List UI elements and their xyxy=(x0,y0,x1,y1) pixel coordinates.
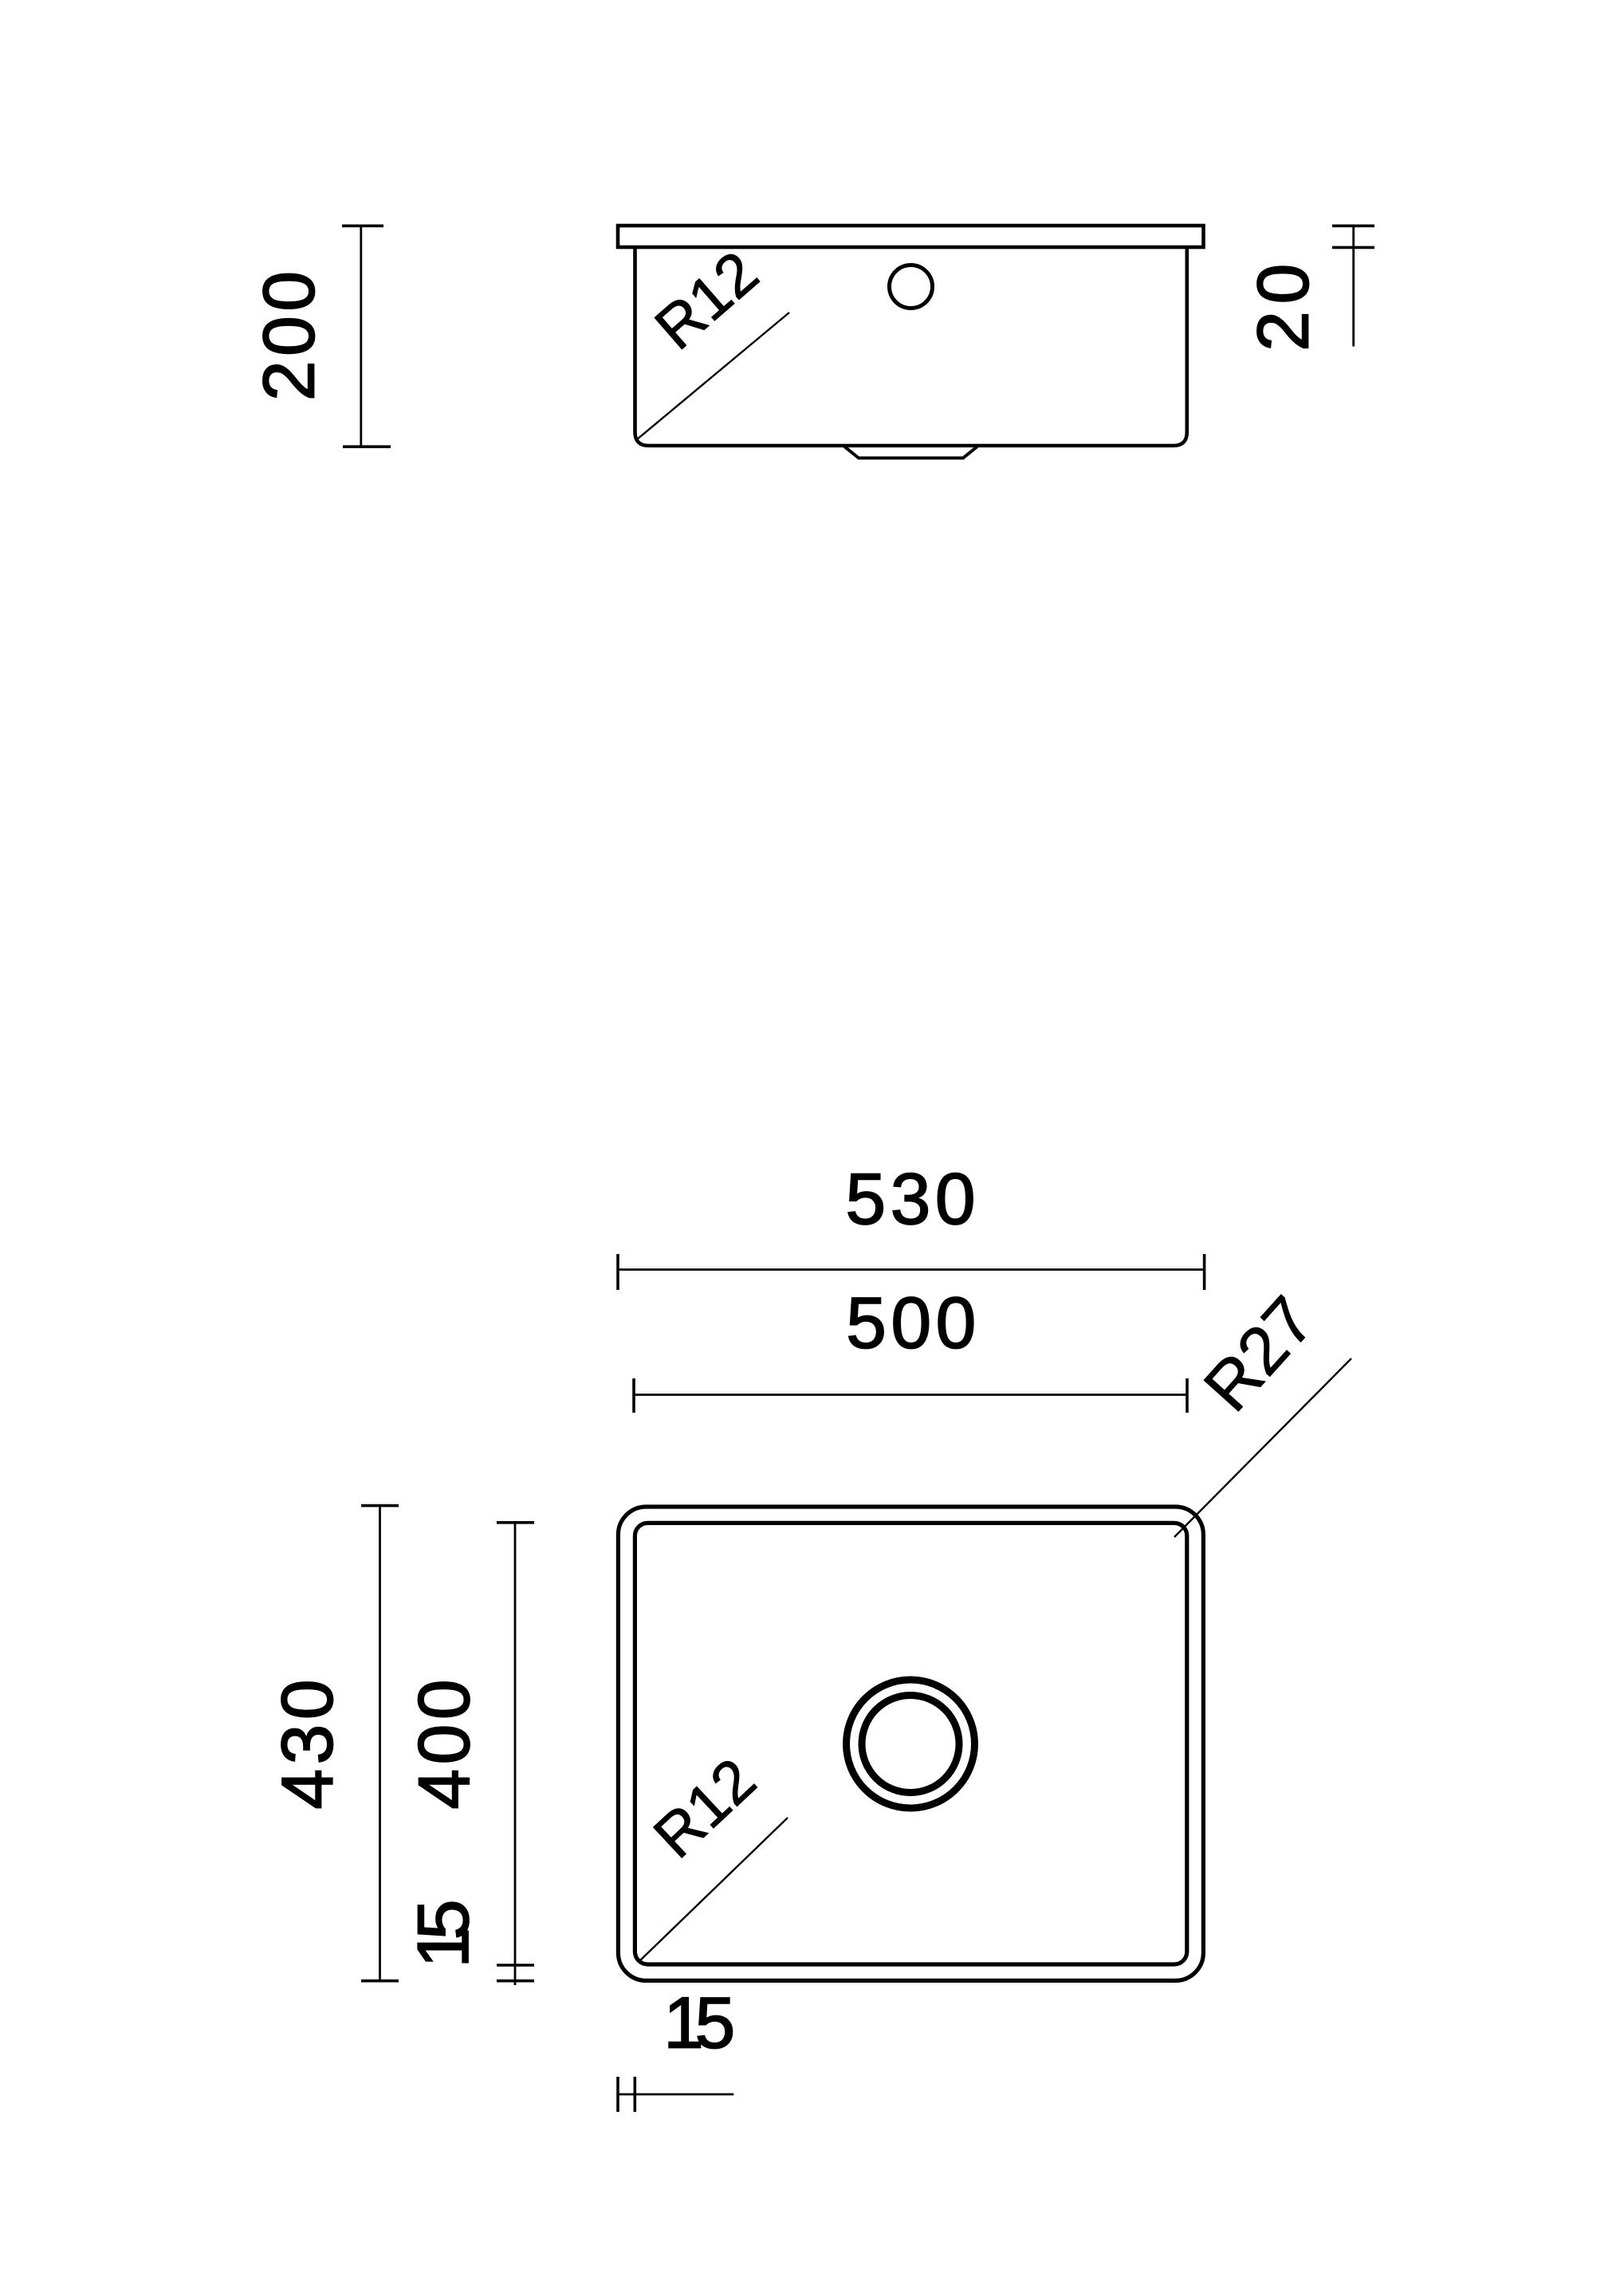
svg-text:500: 500 xyxy=(846,1284,976,1364)
svg-text:430: 430 xyxy=(268,1680,348,1810)
svg-text:200: 200 xyxy=(250,271,330,401)
svg-text:15: 15 xyxy=(663,1983,735,2064)
svg-text:15: 15 xyxy=(403,1900,484,1968)
svg-text:400: 400 xyxy=(404,1680,485,1810)
svg-text:530: 530 xyxy=(846,1159,976,1240)
